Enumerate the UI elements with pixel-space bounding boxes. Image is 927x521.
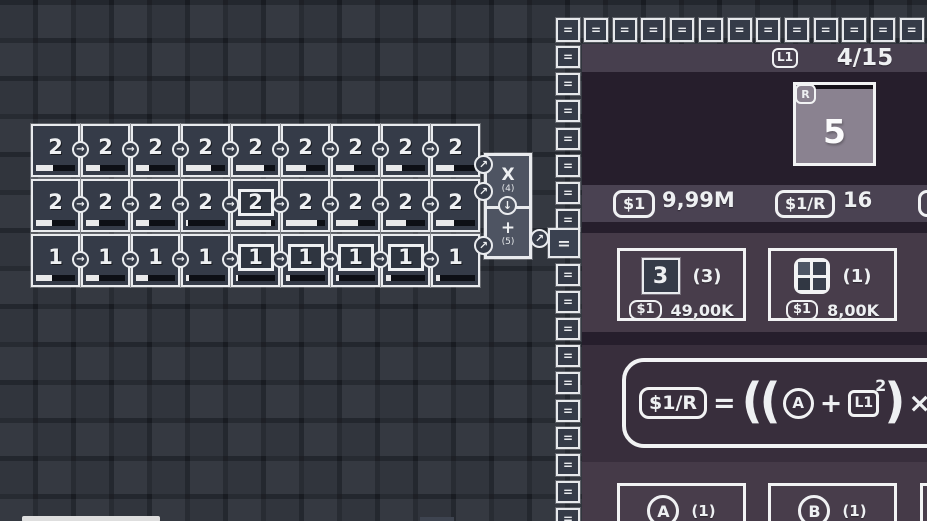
- tile-progress-track: [286, 220, 325, 226]
- tile-value: 2: [98, 190, 113, 214]
- panel-border-tile-left[interactable]: =: [556, 345, 580, 367]
- conveyor-arrow-icon: →: [172, 196, 189, 213]
- tile-value: 1: [448, 245, 463, 269]
- tile-value-boxed: 1: [388, 244, 424, 271]
- conveyor-arrow-icon: →: [222, 196, 239, 213]
- tile-progress-fill: [436, 275, 440, 281]
- tile-value: 1: [198, 245, 213, 269]
- money-badge: $1: [613, 190, 655, 218]
- tile-value-boxed: 1: [338, 244, 374, 271]
- tile-value: 2: [298, 135, 313, 159]
- tile-progress-track: [386, 165, 425, 171]
- formula-operator: ×: [907, 388, 927, 419]
- price-currency-badge: $1: [786, 300, 818, 321]
- tile-value: 1: [98, 245, 113, 269]
- owned-letter-a: A: [647, 495, 679, 521]
- conveyor-arrow-icon: →: [172, 141, 189, 158]
- panel-border-tile-left[interactable]: =: [556, 372, 580, 394]
- tile-value-boxed: 2: [238, 189, 274, 216]
- money-value: 9,99M: [662, 188, 735, 212]
- tile-progress-fill: [236, 220, 271, 226]
- tile-value: 2: [348, 135, 363, 159]
- tile-progress-fill: [386, 275, 391, 281]
- tile-progress-track: [186, 220, 225, 226]
- conveyor-arrow-icon: →: [272, 251, 289, 268]
- tile-value: 2: [48, 135, 63, 159]
- tile-progress-fill: [336, 165, 354, 171]
- conveyor-arrow-icon: →: [422, 251, 439, 268]
- panel-border-tile-corner[interactable]: =: [556, 18, 580, 42]
- tile-value: 2: [448, 135, 463, 159]
- tile-value: 1: [148, 245, 163, 269]
- shop-item-top: 3(3): [620, 253, 743, 299]
- panel-border-tile-top[interactable]: =: [785, 18, 809, 42]
- tile-value: 2: [98, 135, 113, 159]
- tile-value: 1: [48, 245, 63, 269]
- tile-progress-track: [86, 275, 125, 281]
- tile-progress-track: [36, 220, 75, 226]
- formula-operator: +: [819, 388, 844, 419]
- conveyor-arrow-icon: →: [222, 251, 239, 268]
- panel-border-tile-left[interactable]: =: [556, 400, 580, 422]
- panel-border-tile-left[interactable]: =: [556, 73, 580, 95]
- tile-value-wrap: 2: [433, 185, 478, 219]
- shop-item-card[interactable]: 3(3)$149,00K: [617, 248, 746, 321]
- tile-value: 2: [398, 190, 413, 214]
- panel-strip-2: [582, 332, 927, 345]
- panel-border-tile-left[interactable]: =: [556, 128, 580, 150]
- owned-count: (1): [691, 502, 715, 520]
- tile-progress-track: [236, 220, 275, 226]
- rate-value: 16: [843, 188, 872, 212]
- combiner-add-cell[interactable]: + (5): [487, 209, 529, 259]
- tile-progress-fill: [36, 220, 52, 226]
- tile-progress-fill: [86, 275, 99, 281]
- panel-border-tile-left[interactable]: =: [556, 182, 580, 204]
- panel-strip-1: [582, 222, 927, 233]
- grid-cell: [798, 278, 811, 291]
- tile-progress-track: [286, 275, 325, 281]
- owned-item-card-cutoff[interactable]: [920, 483, 927, 521]
- panel-border-tile-left[interactable]: =: [556, 100, 580, 122]
- bottom-tile-edge: [420, 517, 454, 521]
- conveyor-arrow-icon: →: [172, 251, 189, 268]
- tile-progress-fill: [136, 165, 149, 171]
- conveyor-arrow-icon: →: [122, 141, 139, 158]
- generator-timer-bar: [814, 85, 873, 89]
- shop-grid-2x2-icon: [794, 258, 830, 294]
- tile-progress-fill: [86, 165, 100, 171]
- tile-progress-track: [86, 220, 125, 226]
- panel-border-tile-left[interactable]: =: [556, 481, 580, 503]
- conveyor-arrow-icon: →: [222, 141, 239, 158]
- tile-progress-track: [436, 275, 475, 281]
- tile-progress-track: [186, 275, 225, 281]
- panel-border-tile-top[interactable]: =: [814, 18, 838, 42]
- conveyor-arrow-icon: →: [422, 196, 439, 213]
- formula-box: $1/R=((A+L12)×B): [622, 358, 927, 448]
- tile-progress-track: [136, 165, 175, 171]
- conveyor-arrow-icon: →: [272, 196, 289, 213]
- panel-border-tile-left[interactable]: =: [556, 291, 580, 313]
- tile-progress-track: [386, 275, 425, 281]
- shop-item-top: (1): [771, 253, 894, 299]
- conveyor-arrow-icon: →: [72, 141, 89, 158]
- tile-progress-fill: [236, 275, 238, 281]
- tile-progress-fill: [336, 275, 339, 281]
- shop-item-card[interactable]: (1)$18,00K: [768, 248, 897, 321]
- price-currency-badge: $1: [629, 300, 661, 321]
- panel-border-tile-left[interactable]: =: [556, 508, 580, 521]
- formula-paren: ((: [742, 372, 778, 429]
- panel-border-tile-left[interactable]: =: [556, 318, 580, 340]
- owned-letter-b: B: [798, 495, 830, 521]
- tile-progress-track: [186, 165, 225, 171]
- shop-item-count: (3): [693, 266, 722, 287]
- tile-value: 2: [198, 135, 213, 159]
- panel-border-tile-left[interactable]: =: [556, 155, 580, 177]
- tile-progress-fill: [236, 165, 264, 171]
- tile-progress-track: [36, 165, 75, 171]
- tile-progress-fill: [86, 220, 99, 226]
- tile-progress-track: [286, 165, 325, 171]
- level-progress: 4/15: [822, 45, 908, 71]
- tile-progress-fill: [286, 275, 290, 281]
- tile-value: 2: [298, 190, 313, 214]
- stat-badge-cutoff: [918, 190, 927, 217]
- tile-progress-track: [86, 165, 125, 171]
- tile-progress-track: [436, 165, 475, 171]
- tile-progress-fill: [136, 275, 148, 281]
- rate-badge: $1/R: [775, 190, 835, 218]
- tile-progress-fill: [286, 220, 317, 226]
- tile-progress-fill: [186, 165, 211, 171]
- tile-progress-track: [36, 275, 75, 281]
- tile-progress-track: [236, 165, 275, 171]
- tile-progress-track: [436, 220, 475, 226]
- panel-border-tile-top[interactable]: =: [699, 18, 723, 42]
- panel-border-tile-top[interactable]: =: [641, 18, 665, 42]
- formula-paren: ): [884, 372, 902, 429]
- owned-count: (1): [842, 502, 866, 520]
- tile-progress-fill: [186, 275, 189, 281]
- tile-progress-fill: [36, 165, 53, 171]
- panel-border-tile-top[interactable]: =: [842, 18, 866, 42]
- tile-progress-track: [236, 275, 275, 281]
- generator-tile[interactable]: R 5: [793, 82, 876, 166]
- formula-level-badge: L12: [848, 390, 879, 417]
- conveyor-arrow-icon: →: [322, 251, 339, 268]
- panel-border-tile-top[interactable]: =: [900, 18, 924, 42]
- grid-cell: [798, 262, 811, 275]
- add-label: +: [501, 220, 515, 237]
- price-value: 8,00K: [827, 301, 879, 320]
- level-badge: L1: [772, 48, 798, 68]
- tile-progress-track: [336, 275, 375, 281]
- tile-progress-track: [336, 220, 375, 226]
- tile-progress-track: [136, 220, 175, 226]
- conveyor-arrow-icon: →: [372, 196, 389, 213]
- panel-border-tile-left[interactable]: =: [556, 46, 580, 68]
- conveyor-arrow-icon: →: [72, 196, 89, 213]
- output-arrow-icon: ↗: [530, 229, 549, 248]
- conveyor-arrow-icon: →: [272, 141, 289, 158]
- tile-value: 2: [448, 190, 463, 214]
- panel-border-tile-top[interactable]: =: [756, 18, 780, 42]
- shop-item-price-row: $149,00K: [620, 299, 743, 321]
- grid-cell: [813, 278, 826, 291]
- merge-arrow-icon: ↗: [474, 236, 493, 255]
- tile-value: 2: [348, 190, 363, 214]
- tile-progress-fill: [436, 220, 454, 226]
- conveyor-arrow-icon: →: [322, 141, 339, 158]
- multiply-count: (4): [502, 184, 515, 195]
- conveyor-arrow-icon: →: [372, 251, 389, 268]
- tile-progress-fill: [186, 220, 188, 226]
- multiply-label: X: [501, 167, 514, 184]
- panel-border-tile-top[interactable]: =: [584, 18, 608, 42]
- owned-item-card[interactable]: B(1): [768, 483, 897, 521]
- tile-value-wrap: 1: [433, 240, 478, 274]
- formula-variable-a: A: [783, 388, 814, 419]
- panel-border-tile-left[interactable]: =: [556, 427, 580, 449]
- game-stage: L1 4/15 R 5 $1 9,99M $1/R 16 3(3)$149,00…: [0, 0, 927, 521]
- merge-arrow-icon: ↗: [474, 155, 493, 174]
- shop-item-price-row: $18,00K: [771, 299, 894, 321]
- tile-progress-track: [136, 275, 175, 281]
- grid-cell: [813, 262, 826, 275]
- merge-arrow-icon: ↗: [474, 182, 493, 201]
- panel-border-tile-top[interactable]: =: [613, 18, 637, 42]
- panel-border-tile-left[interactable]: =: [556, 264, 580, 286]
- tile-progress-track: [336, 165, 375, 171]
- conveyor-arrow-icon: →: [72, 251, 89, 268]
- shop-item-count: (1): [843, 266, 872, 287]
- panel-border-tile-left[interactable]: =: [556, 454, 580, 476]
- generator-value: 5: [796, 99, 873, 163]
- tile-progress-fill: [386, 165, 402, 171]
- panel-border-tile-active[interactable]: =: [548, 228, 580, 258]
- conveyor-arrow-icon: →: [372, 141, 389, 158]
- tile-progress-fill: [386, 220, 406, 226]
- tile-value-wrap: 2: [433, 130, 478, 164]
- tile-progress-fill: [136, 220, 149, 226]
- tile-progress-fill: [36, 275, 52, 281]
- conveyor-arrow-icon: →: [122, 196, 139, 213]
- tile-value: 2: [198, 190, 213, 214]
- formula-rate-badge: $1/R: [639, 387, 707, 419]
- conveyor-arrow-icon: →: [322, 196, 339, 213]
- tile-value: 2: [148, 190, 163, 214]
- tile-value-boxed: 1: [288, 244, 324, 271]
- tile-value: 2: [398, 135, 413, 159]
- tile-value-boxed: 1: [238, 244, 274, 271]
- tile-progress-fill: [336, 220, 358, 226]
- bottom-toolbar-edge[interactable]: [22, 516, 160, 521]
- panel-border-tile-top[interactable]: =: [728, 18, 752, 42]
- panel-border-tile-top[interactable]: =: [670, 18, 694, 42]
- shop-number-tile-icon: 3: [642, 258, 680, 294]
- tile-progress-track: [386, 220, 425, 226]
- price-value: 49,00K: [671, 301, 734, 320]
- tile-value: 2: [148, 135, 163, 159]
- tile-value: 2: [248, 135, 263, 159]
- tile-progress-fill: [286, 165, 306, 171]
- tile-progress-fill: [436, 165, 454, 171]
- conveyor-arrow-icon: →: [422, 141, 439, 158]
- tile-value: 2: [48, 190, 63, 214]
- conveyor-arrow-icon: →: [122, 251, 139, 268]
- formula-operator: =: [712, 388, 737, 419]
- add-count: (5): [502, 237, 515, 248]
- combiner-down-arrow-icon: ↓: [498, 196, 517, 215]
- panel-border-tile-top[interactable]: =: [871, 18, 895, 42]
- owned-item-card[interactable]: A(1): [617, 483, 746, 521]
